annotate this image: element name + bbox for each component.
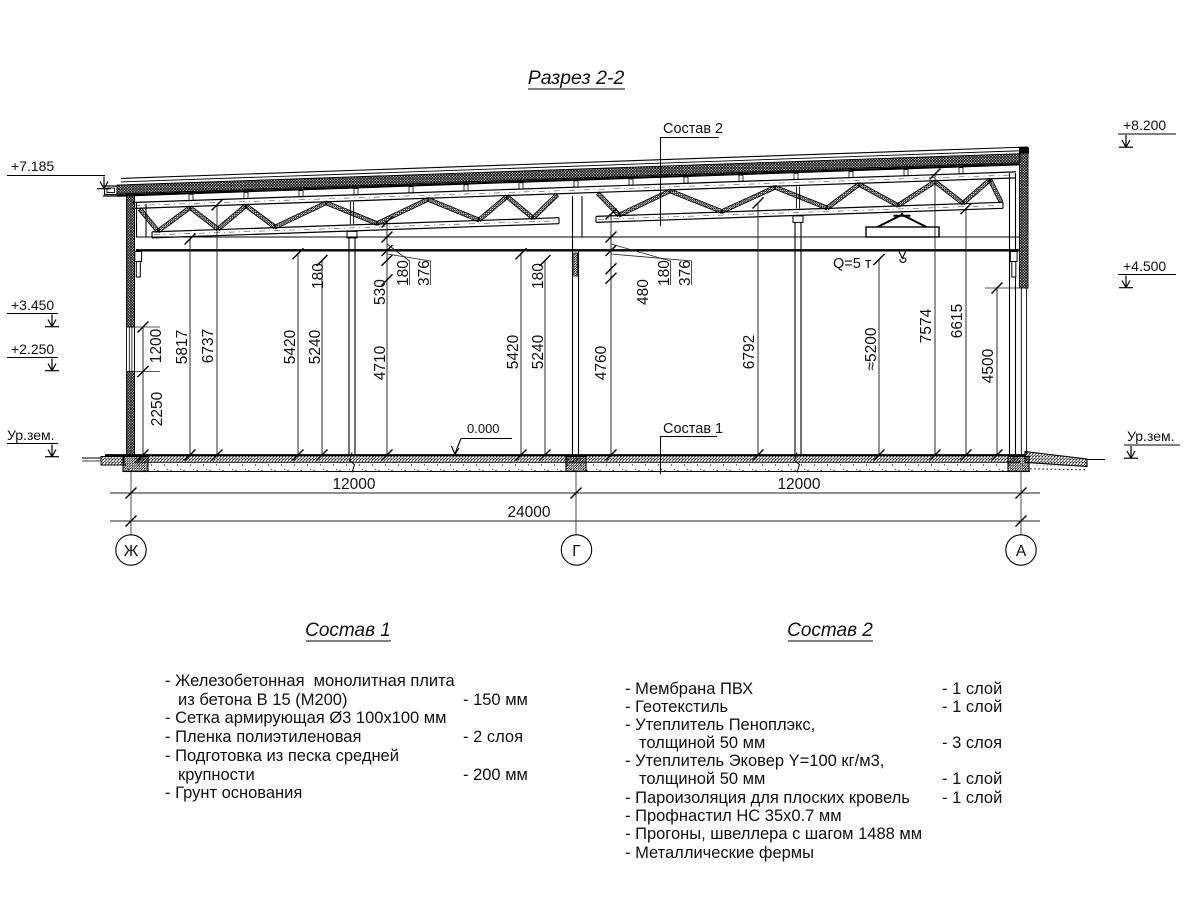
svg-text:Разрез 2-2: Разрез 2-2 (528, 67, 625, 89)
svg-text:+2.250: +2.250 (11, 341, 54, 357)
svg-text:≈5200: ≈5200 (863, 327, 880, 370)
svg-text:- Пароизоляция для плоских кро: - Пароизоляция для плоских кровель (625, 789, 910, 807)
svg-text:Q=5 т: Q=5 т (833, 256, 872, 272)
svg-text:1200: 1200 (148, 328, 165, 363)
svg-text:Состав 2: Состав 2 (787, 620, 873, 641)
svg-text:530: 530 (372, 279, 389, 305)
svg-text:5420: 5420 (282, 329, 299, 364)
svg-text:- 3 слоя: - 3 слоя (942, 734, 1002, 752)
svg-text:6737: 6737 (200, 329, 217, 363)
svg-text:- Утеплитель Эковер Y=100 кг/м: - Утеплитель Эковер Y=100 кг/м3, (625, 752, 884, 770)
svg-text:- Мембрана ПВХ: - Мембрана ПВХ (625, 680, 753, 698)
svg-text:Ж: Ж (124, 543, 139, 560)
svg-text:- 200 мм: - 200 мм (463, 766, 528, 784)
svg-text:- Железобетонная монолитная п: - Железобетонная монолитная плита (165, 672, 455, 690)
svg-text:Состав 1: Состав 1 (305, 620, 391, 641)
svg-text:крупности: крупности (178, 766, 255, 784)
svg-text:Ур.зем.: Ур.зем. (7, 427, 55, 443)
svg-text:4760: 4760 (593, 345, 610, 380)
svg-text:7574: 7574 (918, 308, 935, 343)
svg-text:24000: 24000 (507, 504, 550, 521)
svg-text:- 1 слой: - 1 слой (942, 698, 1002, 716)
svg-text:толщиной 50 мм: толщиной 50 мм (639, 770, 765, 788)
svg-text:5240: 5240 (307, 329, 324, 364)
svg-text:180: 180 (656, 260, 673, 286)
svg-text:- 1 слой: - 1 слой (942, 770, 1002, 788)
svg-text:- 1 слой: - 1 слой (942, 789, 1002, 807)
svg-text:5420: 5420 (505, 334, 522, 369)
svg-text:из бетона В 15 (М200): из бетона В 15 (М200) (178, 691, 347, 709)
svg-text:4710: 4710 (372, 345, 389, 380)
svg-text:+7.185: +7.185 (11, 158, 54, 174)
svg-text:180: 180 (530, 263, 547, 289)
svg-text:Ур.зем.: Ур.зем. (1127, 428, 1175, 444)
svg-text:- 2 слоя: - 2 слоя (463, 728, 523, 746)
svg-text:- Грунт основания: - Грунт основания (165, 784, 302, 802)
svg-text:- 1 слой: - 1 слой (942, 680, 1002, 698)
svg-text:толщиной 50 мм: толщиной 50 мм (639, 734, 765, 752)
svg-text:- 150 мм: - 150 мм (463, 691, 528, 709)
svg-text:480: 480 (635, 279, 652, 305)
svg-text:А: А (1016, 543, 1027, 560)
svg-text:+4.500: +4.500 (1123, 258, 1166, 274)
svg-text:- Металлические фермы: - Металлические фермы (625, 844, 814, 862)
svg-text:5240: 5240 (530, 334, 547, 369)
svg-text:6792: 6792 (741, 335, 758, 369)
svg-text:- Подготовка из песка средней: - Подготовка из песка средней (165, 747, 399, 765)
svg-text:- Профнастил НС 35х0.7 мм: - Профнастил НС 35х0.7 мм (625, 807, 842, 825)
svg-text:6615: 6615 (949, 304, 966, 338)
svg-text:376: 376 (416, 260, 433, 286)
svg-text:- Пленка полиэтиленовая: - Пленка полиэтиленовая (165, 728, 361, 746)
svg-text:- Сетка армирующая Ø3 100х100: - Сетка армирующая Ø3 100х100 мм (165, 709, 447, 727)
svg-text:Г: Г (572, 543, 581, 560)
svg-text:180: 180 (395, 260, 412, 286)
svg-text:12000: 12000 (777, 476, 820, 493)
svg-text:0.000: 0.000 (467, 421, 500, 436)
svg-text:12000: 12000 (332, 476, 375, 493)
svg-text:- Утеплитель Пеноплэкс,: - Утеплитель Пеноплэкс, (625, 716, 815, 734)
svg-text:- Геотекстиль: - Геотекстиль (625, 698, 728, 716)
svg-text:2250: 2250 (149, 391, 166, 426)
svg-text:4500: 4500 (980, 348, 997, 383)
svg-text:5817: 5817 (174, 330, 191, 364)
svg-text:Состав 1: Состав 1 (663, 421, 723, 437)
svg-text:376: 376 (677, 260, 694, 286)
svg-text:- Прогоны, швеллера с шагом 14: - Прогоны, швеллера с шагом 1488 мм (625, 825, 922, 843)
svg-text:Состав 2: Состав 2 (663, 121, 723, 137)
svg-text:+3.450: +3.450 (11, 297, 54, 313)
svg-text:180: 180 (310, 263, 327, 289)
svg-text:+8.200: +8.200 (1123, 117, 1166, 133)
